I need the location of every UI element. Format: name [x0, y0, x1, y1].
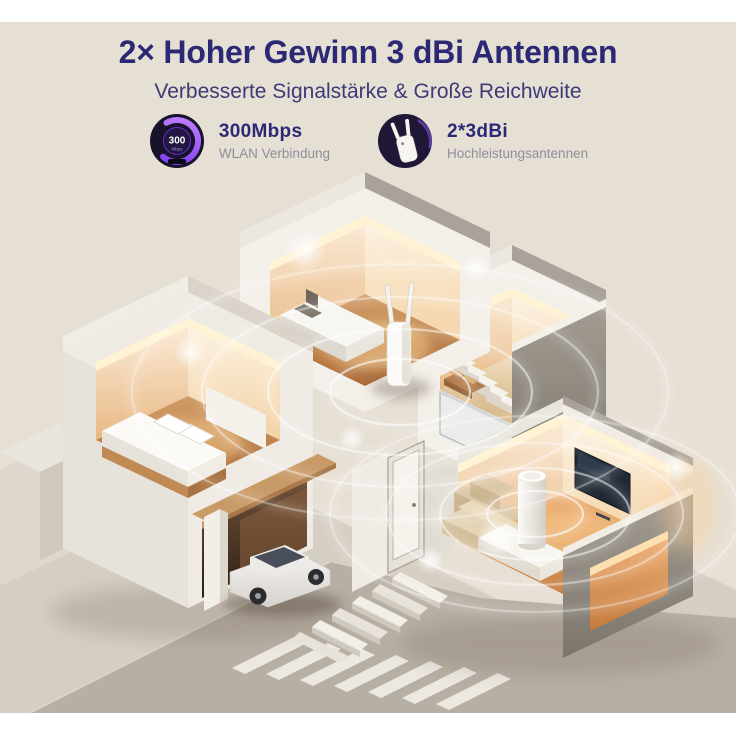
product-infographic: 2× Hoher Gewinn 3 dBi Antennen Verbesser… [0, 0, 736, 736]
feature-antenna-title: 2*3dBi [447, 121, 588, 143]
feature-antenna-subtitle: Hochleistungsantennen [447, 146, 588, 161]
beige-backdrop: 2× Hoher Gewinn 3 dBi Antennen Verbesser… [0, 22, 736, 713]
wifi-repeater-icon [376, 112, 434, 170]
feature-speed: 300 Mbps 300Mbps WLAN Verbindung [148, 112, 330, 170]
feature-antenna: 2*3dBi Hochleistungsantennen [376, 112, 588, 170]
page-subtitle: Verbesserte Signalstärke & Große Reichwe… [0, 80, 736, 104]
gauge-unit: Mbps [171, 147, 183, 152]
page-title: 2× Hoher Gewinn 3 dBi Antennen [0, 34, 736, 71]
speed-gauge-icon: 300 Mbps [148, 112, 206, 170]
feature-speed-title: 300Mbps [219, 121, 330, 143]
feature-speed-subtitle: WLAN Verbindung [219, 146, 330, 161]
gauge-value: 300 [169, 136, 186, 147]
feature-row: 300 Mbps 300Mbps WLAN Verbindung [0, 112, 736, 170]
